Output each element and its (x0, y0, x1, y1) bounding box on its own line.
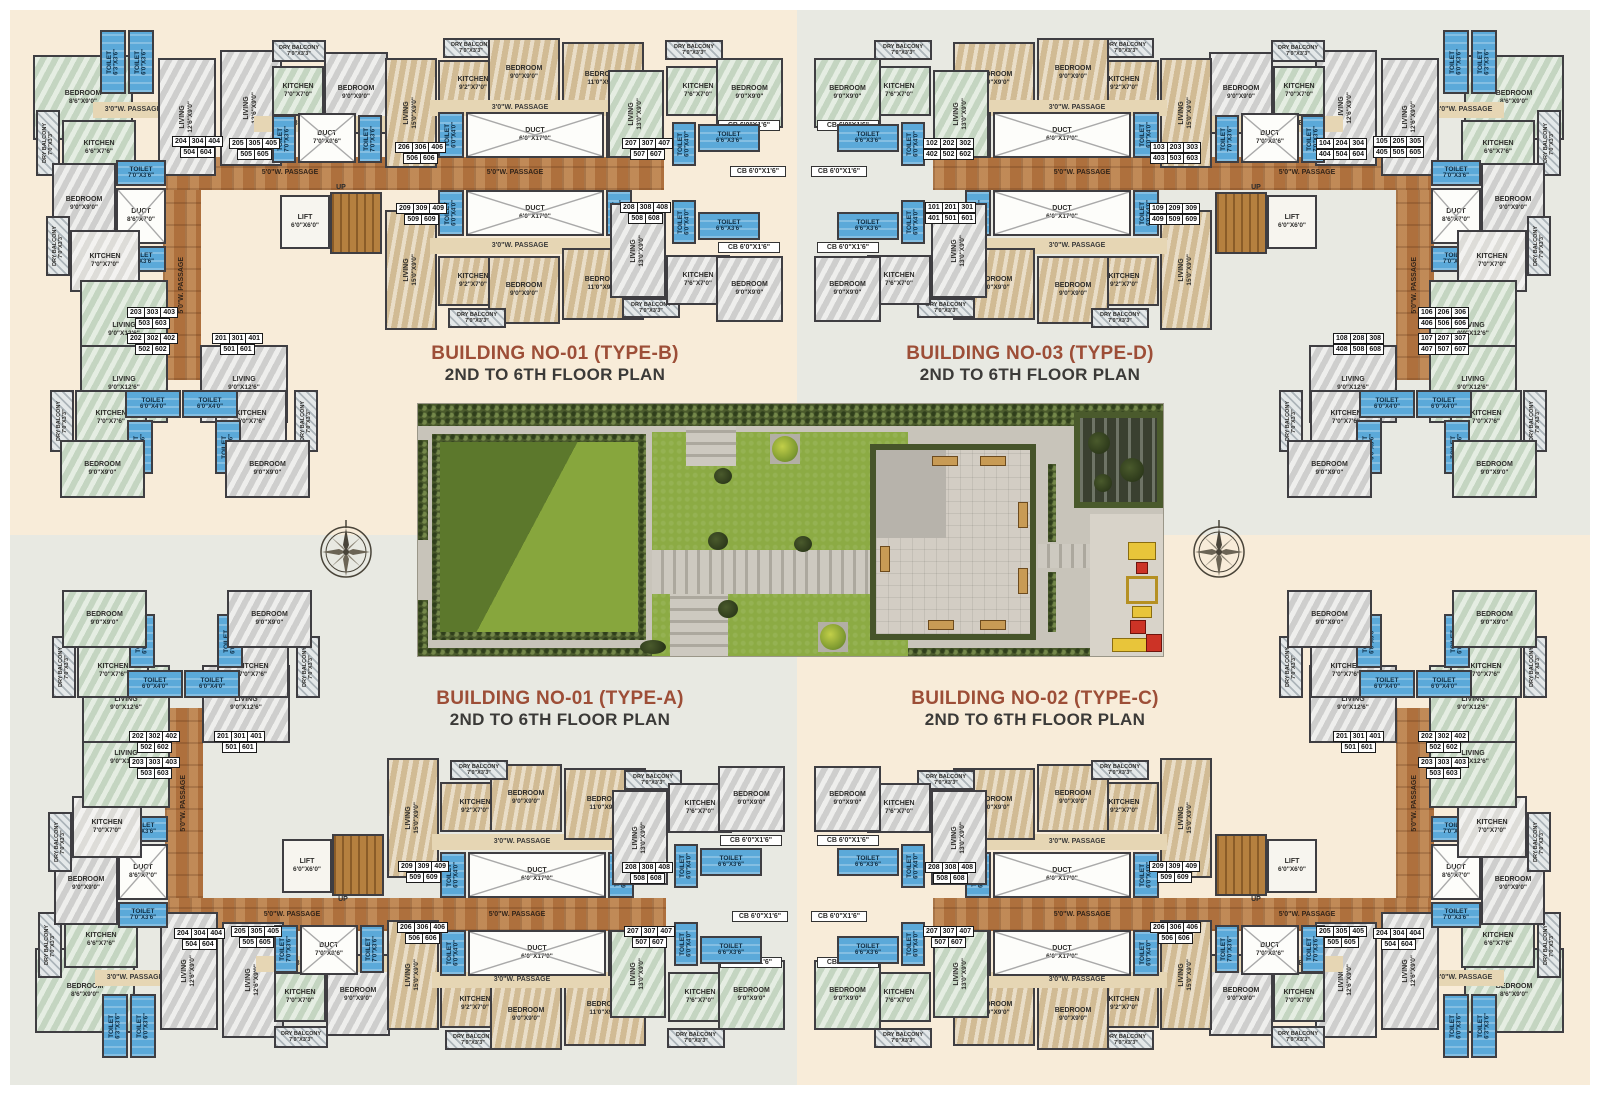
room-kitchen: KITCHEN7'0"X7'0" (1273, 66, 1325, 116)
room-label: TOILET7'0"X3'6" (130, 908, 156, 922)
room-toilet: TOILET6'6"X3'6" (700, 848, 762, 876)
room-label: TOILET6'0"X3'6" (1449, 49, 1463, 75)
room-label: TOILET6'6"X3'6" (855, 131, 881, 145)
room-label: TOILET6'0"X4'0" (679, 853, 693, 879)
room-label: BEDROOM9'0"X9'0" (731, 85, 768, 100)
room-label: LIVING13'0"X9'0" (951, 235, 966, 267)
room-50w: 5'0"W. PASSAGE (232, 908, 352, 922)
room-label: TOILET6'0"X4'0" (142, 677, 168, 691)
room-bedroom: BEDROOM9'0"X9'0" (62, 590, 147, 648)
room-lift: LIFT6'0"X6'0" (1267, 839, 1317, 893)
room-duct: DUCT7'0"X8'6" (298, 113, 356, 163)
room-stairs (330, 192, 382, 254)
room-label: KITCHEN9'2"X7'0" (1108, 996, 1139, 1011)
unit-number-chip: 206306406506606 (1143, 922, 1209, 944)
room-label: 5'0"W. PASSAGE (1279, 911, 1336, 919)
floor-plan-sheet: { "colors": { "page_border": "#ffffff", … (0, 0, 1600, 1095)
room-duct: DUCT6'0"X17'0" (993, 852, 1131, 898)
room-kitchen: KITCHEN7'0"X7'0" (274, 972, 326, 1022)
room-label: LIVING9'0"X12'6" (230, 696, 262, 711)
unit-number-chip: 209309409509609 (389, 203, 455, 225)
room-label: DRY BALCONY7'0"X3'3" (44, 925, 56, 965)
room-label: TOILET6'6"X3'6" (718, 943, 744, 957)
unit-number-chip: 209309409509609 (391, 861, 457, 883)
unit-number-chip: 202302402502602 (122, 731, 188, 753)
room-label: 3'0"W. PASSAGE (1049, 976, 1106, 984)
room-label: BEDROOM9'0"X9'0" (1223, 987, 1260, 1002)
room-label: KITCHEN7'6"X7'0" (684, 800, 715, 815)
room-bedroom: BEDROOM9'0"X9'0" (1287, 440, 1372, 498)
room-label: KITCHEN7'0"X7'0" (1476, 819, 1507, 834)
room-toilet: TOILET7'0"X3'6" (1431, 902, 1481, 928)
room-label: UP (338, 896, 348, 904)
room-label: DRY BALCONY7'0"X3'3" (451, 42, 491, 54)
compass-icon (1190, 518, 1248, 580)
room-toilet: TOILET6'3"X3'6" (100, 30, 126, 94)
room-label: TOILET7'0"X3'6" (1443, 908, 1469, 922)
room-50w: 5'0"W. PASSAGE (455, 166, 575, 180)
room-label: KITCHEN6'6"X7'6" (83, 140, 114, 155)
room-duct: DUCT7'0"X8'6" (300, 925, 358, 975)
room-label: LIVING13'0"X9'0" (953, 958, 968, 990)
room-cb: CB 6'0"X1'6" (730, 166, 786, 177)
room-50w: 5'0"W. PASSAGE (230, 166, 350, 180)
title-building-01-type-b: BUILDING NO-01 (TYPE-B) 2ND TO 6TH FLOOR… (415, 343, 695, 385)
room-label: DRY BALCONY7'0"X3'3" (1100, 764, 1140, 776)
room-bedroom: BEDROOM9'0"X9'0" (814, 58, 881, 128)
room-label: TOILET6'0"X3'6" (136, 1013, 150, 1039)
room-label: TOILET7'0"X3'6" (1220, 126, 1234, 152)
room-label: KITCHEN9'2"X7'0" (1108, 76, 1139, 91)
room-label: DRY BALCONY7'0"X3'3" (1106, 1034, 1146, 1046)
room-label: 3'0"W. PASSAGE (1049, 104, 1106, 112)
unit-number-chip: 205305405505605 (1309, 926, 1375, 948)
unit-number-chip: 207307407507607 (615, 138, 681, 160)
room-bedroom: BEDROOM9'0"X9'0" (225, 440, 310, 498)
room-label: TOILET6'3"X3'6" (1477, 49, 1491, 75)
room-label: TOILET6'0"X3'6" (1449, 1013, 1463, 1039)
room-label: BEDROOM9'0"X9'0" (829, 987, 866, 1002)
room-label: TOILET6'0"X4'0" (677, 209, 691, 235)
unit-number-chip: 108208308408508608 (1326, 333, 1392, 355)
room-label: KITCHEN9'2"X7'0" (1108, 273, 1139, 288)
room-toilet: TOILET6'0"X4'0" (1359, 390, 1415, 418)
room-label: TOILET6'0"X4'0" (1374, 397, 1400, 411)
room-label: TOILET6'0"X4'0" (197, 397, 223, 411)
room-label: DRY BALCONY7'0"X3'3" (302, 647, 314, 687)
room-label: TOILET6'0"X4'0" (199, 677, 225, 691)
unit-number-chip: 205305405505605 (224, 926, 290, 948)
room-label: KITCHEN7'6"X7'0" (883, 800, 914, 815)
room-kitchen: KITCHEN7'0"X7'0" (272, 66, 324, 116)
unit-number-chip: 203303403503603 (1411, 757, 1477, 779)
room-living: LIVING12'6"X9'0" (158, 58, 216, 176)
room-bedroom: BEDROOM9'0"X9'0" (1452, 440, 1537, 498)
unit-number-chip: 209309409509609 (1142, 861, 1208, 883)
room-label: 5'0"W. PASSAGE (1411, 775, 1419, 832)
building-plan-building-03-type-d: BEDROOM8'6"X9'0"TOILET6'3"X3'6"TOILET6'0… (812, 18, 1567, 500)
room-label: 3'0"W. PASSAGE (492, 104, 549, 112)
room-duct: DUCT6'0"X17'0" (468, 930, 606, 976)
room-label: LIVING13'0"X9'0" (628, 98, 643, 130)
room-label: 5'0"W. PASSAGE (1054, 169, 1111, 177)
room-label: 5'0"W. PASSAGE (489, 911, 546, 919)
room-label: DRY BALCONY7'0"X3'3" (883, 44, 923, 56)
room-label: BEDROOM9'0"X9'0" (1311, 461, 1348, 476)
play-equipment (1128, 542, 1156, 560)
room-label: DRY BALCONY7'0"X3'3" (279, 45, 319, 57)
room-stairs (1215, 834, 1267, 896)
room-label: TOILET6'0"X4'0" (1431, 677, 1457, 691)
unit-number-chip: 201301401501601 (1326, 731, 1392, 753)
room-toilet: TOILET6'0"X4'0" (184, 670, 240, 698)
room-toilet: TOILET6'3"X3'6" (1471, 994, 1497, 1058)
room-label: DRY BALCONY7'0"X3'3" (1285, 401, 1297, 441)
room-label: KITCHEN7'0"X7'0" (1476, 253, 1507, 268)
room-bedroom: BEDROOM9'0"X9'0" (814, 256, 881, 322)
room-duct: DUCT6'0"X17'0" (468, 852, 606, 898)
room-label: CB 6'0"X1'6" (818, 913, 860, 921)
room-toilet: TOILET6'0"X3'6" (130, 994, 156, 1058)
room-label: 3'0"W. PASSAGE (107, 974, 164, 982)
room-label: KITCHEN7'0"X7'6" (95, 410, 126, 425)
room-label: BEDROOM9'0"X9'0" (249, 461, 286, 476)
title-building-03-type-d: BUILDING NO-03 (TYPE-D) 2ND TO 6TH FLOOR… (890, 343, 1170, 385)
room-label: 3'0"W. PASSAGE (492, 242, 549, 250)
room-label: LIVING13'0"X9'0" (630, 958, 645, 990)
room-dry: DRY BALCONY7'0"X3'3" (1527, 812, 1551, 872)
room-toilet: TOILET7'0"X3'6" (1215, 925, 1239, 973)
room-label: BEDROOM9'0"X9'0" (1495, 196, 1532, 211)
room-label: DRY BALCONY7'0"X3'3" (457, 312, 497, 324)
unit-number-chip: 203303403503603 (120, 307, 186, 329)
compass-icon (317, 518, 375, 580)
room-label: TOILET7'0"X3'6" (1443, 166, 1469, 180)
room-label: BEDROOM9'0"X9'0" (1476, 611, 1513, 626)
room-label: TOILET6'6"X3'6" (718, 855, 744, 869)
room-bedroom: BEDROOM9'0"X9'0" (814, 960, 881, 1030)
room-label: KITCHEN7'6"X7'0" (883, 989, 914, 1004)
room-toilet: TOILET6'0"X3'6" (128, 30, 154, 94)
room-label: LIFT6'0"X6'0" (293, 858, 321, 873)
room-label: LIVING12'6"X9'0" (181, 955, 196, 987)
room-toilet: TOILET7'0"X3'6" (1215, 115, 1239, 163)
room-label: DRY BALCONY7'0"X3'3" (1529, 401, 1541, 441)
room-label: DRY BALCONY7'0"X3'3" (1529, 647, 1541, 687)
room-dry: DRY BALCONY7'0"X3'3" (448, 308, 506, 328)
room-label: TOILET6'6"X3'6" (716, 131, 742, 145)
room-label: LIVING15'0"X9'0" (1178, 959, 1193, 991)
room-label: 5'0"W. PASSAGE (1054, 911, 1111, 919)
room-toilet: TOILET6'6"X3'6" (837, 936, 899, 964)
unit-number-chip: 208308408508608 (613, 202, 679, 224)
unit-number-chip: 109209309409509609 (1142, 203, 1208, 225)
unit-number-chip: 201301401501601 (207, 731, 273, 753)
room-label: KITCHEN9'2"X7'0" (459, 996, 490, 1011)
room-label: TOILET7'0"X3'6" (1220, 936, 1234, 962)
room-label: DRY BALCONY7'0"X3'3" (1533, 226, 1545, 266)
room-label: KITCHEN7'6"X7'0" (684, 989, 715, 1004)
room-toilet: TOILET7'0"X3'6" (1431, 160, 1481, 186)
room-label: KITCHEN9'2"X7'0" (457, 76, 488, 91)
room-label: LIVING15'0"X9'0" (1178, 254, 1193, 286)
room-label: BEDROOM9'0"X9'0" (508, 1007, 545, 1022)
room-dry: DRY BALCONY7'0"X3'3" (667, 1028, 725, 1048)
room-bedroom: BEDROOM9'0"X9'0" (1452, 590, 1537, 648)
building-title: BUILDING NO-01 (TYPE-B) (415, 343, 695, 365)
room-label: DRY BALCONY7'0"X3'3" (300, 401, 312, 441)
room-label: KITCHEN7'0"X7'0" (284, 989, 315, 1004)
room-duct: DUCT6'0"X17'0" (993, 112, 1131, 158)
room-bedroom: BEDROOM9'0"X9'0" (814, 766, 881, 832)
building-subtitle: 2ND TO 6TH FLOOR PLAN (420, 710, 700, 730)
room-label: LIVING13'0"X9'0" (630, 235, 645, 267)
room-label: 3'0"W. PASSAGE (1436, 106, 1493, 114)
room-label: LIVING13'0"X9'0" (632, 822, 647, 854)
room-label: 5'0"W. PASSAGE (1279, 169, 1336, 177)
building-title: BUILDING NO-01 (TYPE-A) (420, 688, 700, 710)
room-bedroom: BEDROOM9'0"X9'0" (60, 440, 145, 498)
room-cb: CB 6'0"X1'6" (817, 242, 879, 253)
room-label: KITCHEN7'0"X7'6" (97, 663, 128, 678)
room-label: DRY BALCONY7'0"X3'3" (52, 226, 64, 266)
room-toilet: TOILET6'0"X4'0" (125, 390, 181, 418)
room-label: CB 6'0"X1'6" (827, 244, 869, 252)
unit-number-chip: 207307407507607 (617, 926, 683, 948)
bench (1018, 502, 1028, 528)
room-cb: CB 6'0"X1'6" (718, 242, 780, 253)
room-duct: DUCT6'0"X17'0" (466, 112, 604, 158)
room-label: DRY BALCONY7'0"X3'3" (54, 822, 66, 862)
room-bedroom: BEDROOM9'0"X9'0" (716, 256, 783, 322)
unit-number-chip: 204304404504604 (1366, 928, 1432, 950)
room-dry: DRY BALCONY7'0"X3'3" (1527, 216, 1551, 276)
room-living: LIVING15'0"X9'0" (1160, 210, 1212, 330)
room-bedroom: BEDROOM9'0"X9'0" (718, 960, 785, 1030)
room-label: DRY BALCONY7'0"X3'3" (1106, 42, 1146, 54)
room-bedroom: BEDROOM9'0"X9'0" (1037, 38, 1109, 108)
room-label: LIVING15'0"X9'0" (405, 802, 420, 834)
room-label: LIVING9'0"X12'6" (1457, 696, 1489, 711)
room-lift: LIFT6'0"X6'0" (280, 195, 330, 249)
room-label: BEDROOM9'0"X9'0" (340, 987, 377, 1002)
room-label: 3'0"W. PASSAGE (1436, 974, 1493, 982)
room-label: LIVING9'0"X12'6" (1337, 696, 1369, 711)
unit-number-chip: 103203303403503603 (1143, 142, 1209, 164)
room-50w: 5'0"W. PASSAGE (1022, 908, 1142, 922)
room-lift: LIFT6'0"X6'0" (1267, 195, 1317, 249)
room-label: KITCHEN9'2"X7'0" (459, 799, 490, 814)
room-toilet: TOILET6'6"X3'6" (837, 848, 899, 876)
play-equipment (1136, 562, 1148, 574)
room-cb: CB 6'0"X1'6" (817, 835, 879, 846)
room-label: DRY BALCONY7'0"X3'3" (459, 764, 499, 776)
unit-number-chip: 102202302402502602 (916, 138, 982, 160)
building-plan-building-02-type-c: BEDROOM8'6"X9'0"TOILET6'3"X3'6"TOILET6'0… (812, 588, 1567, 1070)
room-label: BEDROOM9'0"X9'0" (68, 876, 105, 891)
room-toilet: TOILET6'6"X3'6" (837, 212, 899, 240)
room-label: DRY BALCONY7'0"X3'3" (926, 774, 966, 786)
room-toilet: TOILET6'0"X3'6" (1443, 994, 1469, 1058)
room-toilet: TOILET7'0"X3'6" (118, 902, 168, 928)
room-label: BEDROOM9'0"X9'0" (1055, 1007, 1092, 1022)
room-cb: CB 6'0"X1'6" (811, 911, 867, 922)
room-50w: 5'0"W. PASSAGE (1022, 166, 1142, 180)
room-label: LIVING12'6"X9'0" (1402, 955, 1417, 987)
room-label: BEDROOM9'0"X9'0" (1311, 611, 1348, 626)
room-label: TOILET6'0"X4'0" (1431, 397, 1457, 411)
room-dry: DRY BALCONY7'0"X3'3" (665, 40, 723, 60)
room-living: LIVING15'0"X9'0" (1160, 758, 1212, 878)
room-label: KITCHEN7'0"X7'0" (91, 819, 122, 834)
room-label: KITCHEN7'0"X7'6" (1470, 410, 1501, 425)
room-duct: DUCT6'0"X17'0" (993, 190, 1131, 236)
room-toilet: TOILET6'0"X4'0" (127, 670, 183, 698)
room-label: DRY BALCONY7'0"X3'3" (1278, 1031, 1318, 1043)
room-dry: DRY BALCONY7'0"X3'3" (48, 812, 72, 872)
room-label: CB 6'0"X1'6" (737, 168, 779, 176)
building-plan-building-01-type-b: BEDROOM8'6"X9'0"TOILET6'3"X3'6"TOILET6'0… (30, 18, 785, 500)
room-toilet: TOILET6'6"X3'6" (698, 212, 760, 240)
room-label: DRY BALCONY7'0"X3'3" (1543, 123, 1555, 163)
room-cb: CB 6'0"X1'6" (720, 835, 782, 846)
room-label: 3'0"W. PASSAGE (1049, 838, 1106, 846)
room-label: BEDROOM9'0"X9'0" (84, 461, 121, 476)
room-cb: CB 6'0"X1'6" (732, 911, 788, 922)
room-label: DRY BALCONY7'0"X3'3" (926, 302, 966, 314)
room-label: CB 6'0"X1'6" (827, 837, 869, 845)
room-label: DRY BALCONY7'0"X3'3" (633, 774, 673, 786)
room-label: DRY BALCONY7'0"X3'3" (1533, 822, 1545, 862)
room-label: BEDROOM9'0"X9'0" (508, 790, 545, 805)
room-label: DRY BALCONY7'0"X3'3" (58, 647, 70, 687)
room-label: LIFT6'0"X6'0" (291, 214, 319, 229)
room-label: TOILET6'3"X3'6" (1477, 1013, 1491, 1039)
room-label: DRY BALCONY7'0"X3'3" (1285, 647, 1297, 687)
room-label: TOILET6'3"X3'6" (108, 1013, 122, 1039)
unit-number-chip: 203303403503603 (122, 757, 188, 779)
room-toilet: TOILET6'3"X3'6" (102, 994, 128, 1058)
room-label: 3'0"W. PASSAGE (494, 976, 551, 984)
room-cb: CB 6'0"X1'6" (811, 166, 867, 177)
unit-number-chip: 207307407507607 (916, 926, 982, 948)
room-duct: DUCT7'0"X8'6" (1241, 925, 1299, 975)
room-label: 5'0"W. PASSAGE (1411, 257, 1419, 314)
room-dry: DRY BALCONY7'0"X3'3" (46, 216, 70, 276)
room-label: BEDROOM9'0"X9'0" (1495, 876, 1532, 891)
bench (880, 546, 890, 572)
room-label: DRY BALCONY7'0"X3'3" (883, 1032, 923, 1044)
room-label: KITCHEN7'0"X7'0" (1283, 83, 1314, 98)
room-label: TOILET6'3"X3'6" (106, 49, 120, 75)
room-label: DRY BALCONY7'0"X3'3" (42, 123, 54, 163)
room-label: UP (1251, 896, 1261, 904)
room-label: BEDROOM9'0"X9'0" (338, 85, 375, 100)
room-toilet: TOILET7'0"X3'6" (358, 115, 382, 163)
room-label: BEDROOM9'0"X9'0" (829, 791, 866, 806)
title-building-01-type-a: BUILDING NO-01 (TYPE-A) 2ND TO 6TH FLOOR… (420, 688, 700, 730)
unit-number-chip: 104204304404504604 (1309, 138, 1375, 160)
unit-number-chip: 208308408508608 (918, 862, 984, 884)
room-bedroom: BEDROOM9'0"X9'0" (718, 766, 785, 832)
room-label: BEDROOM9'0"X9'0" (733, 791, 770, 806)
room-label: TOILET6'0"X3'6" (134, 49, 148, 75)
building-plan-building-01-type-a: BEDROOM8'6"X9'0"TOILET6'3"X3'6"TOILET6'0… (32, 588, 787, 1070)
room-label: LIVING15'0"X9'0" (1178, 97, 1193, 129)
room-label: TOILET6'6"X3'6" (855, 943, 881, 957)
room-toilet: TOILET7'0"X3'6" (360, 925, 384, 973)
room-duct: DUCT6'0"X17'0" (993, 930, 1131, 976)
room-label: LIVING13'0"X9'0" (953, 98, 968, 130)
room-dry: DRY BALCONY7'0"X3'3" (1271, 40, 1325, 62)
room-duct: DUCT7'0"X8'6" (1241, 113, 1299, 163)
room-up: UP (1241, 183, 1271, 193)
building-subtitle: 2ND TO 6TH FLOOR PLAN (890, 365, 1170, 385)
room-label: LIVING15'0"X9'0" (405, 959, 420, 991)
room-dry: DRY BALCONY7'0"X3'3" (1091, 760, 1149, 780)
unit-number-chip: 206306406506606 (390, 922, 456, 944)
room-dry: DRY BALCONY7'0"X3'3" (874, 40, 932, 60)
room-duct: DUCT6'0"X17'0" (466, 190, 604, 236)
building-title: BUILDING NO-03 (TYPE-D) (890, 343, 1170, 365)
room-label: TOILET7'0"X3'6" (365, 936, 379, 962)
room-dry: DRY BALCONY7'0"X3'3" (874, 1028, 932, 1048)
room-label: KITCHEN7'0"X7'0" (1283, 989, 1314, 1004)
unit-number-chip: 101201301401501601 (918, 202, 984, 224)
room-bedroom: BEDROOM9'0"X9'0" (227, 590, 312, 648)
room-stairs (1215, 192, 1267, 254)
room-label: DRY BALCONY7'0"X3'3" (676, 1032, 716, 1044)
shrub-2 (708, 532, 728, 550)
room-label: BEDROOM9'0"X9'0" (506, 282, 543, 297)
room-label: DRY BALCONY7'0"X3'3" (56, 401, 68, 441)
room-toilet: TOILET6'3"X3'6" (1471, 30, 1497, 94)
room-stairs (332, 834, 384, 896)
room-toilet: TOILET6'6"X3'6" (698, 124, 760, 152)
room-label: DRY BALCONY7'0"X3'3" (281, 1031, 321, 1043)
room-label: UP (336, 184, 346, 192)
room-label: LIVING15'0"X9'0" (403, 254, 418, 286)
room-toilet: TOILET6'0"X4'0" (1416, 670, 1472, 698)
room-bedroom: BEDROOM9'0"X9'0" (490, 980, 562, 1050)
unit-number-chip: 107207307407507607 (1411, 333, 1477, 355)
room-label: BEDROOM9'0"X9'0" (506, 65, 543, 80)
room-label: LIVING12'6"X9'0" (179, 101, 194, 133)
room-dry: DRY BALCONY7'0"X3'3" (1271, 1026, 1325, 1048)
room-bedroom: BEDROOM9'0"X9'0" (488, 38, 560, 108)
room-label: LIVING15'0"X9'0" (1178, 802, 1193, 834)
room-label: DRY BALCONY7'0"X3'3" (631, 302, 671, 314)
room-toilet: TOILET6'0"X4'0" (1359, 670, 1415, 698)
room-label: CB 6'0"X1'6" (818, 168, 860, 176)
unit-number-chip: 208308408508608 (615, 862, 681, 884)
room-toilet: TOILET6'0"X4'0" (1416, 390, 1472, 418)
room-lift: LIFT6'0"X6'0" (282, 839, 332, 893)
unit-number-chip: 201301401501601 (205, 333, 271, 355)
room-toilet: TOILET6'0"X3'6" (1443, 30, 1469, 94)
unit-number-chip: 105205305405505605 (1366, 136, 1432, 158)
room-toilet: TOILET6'0"X4'0" (182, 390, 238, 418)
room-label: KITCHEN7'0"X7'6" (1470, 663, 1501, 678)
room-label: BEDROOM9'0"X9'0" (733, 987, 770, 1002)
room-label: LIVING9'0"X12'6" (110, 696, 142, 711)
room-label: 3'0"W. PASSAGE (1049, 242, 1106, 250)
room-50w: 5'0"W. PASSAGE (457, 908, 577, 922)
room-label: 5'0"W. PASSAGE (180, 775, 188, 832)
room-dry: DRY BALCONY7'0"X3'3" (272, 40, 326, 62)
room-label: BEDROOM9'0"X9'0" (1223, 85, 1260, 100)
room-label: BEDROOM9'0"X9'0" (1055, 790, 1092, 805)
